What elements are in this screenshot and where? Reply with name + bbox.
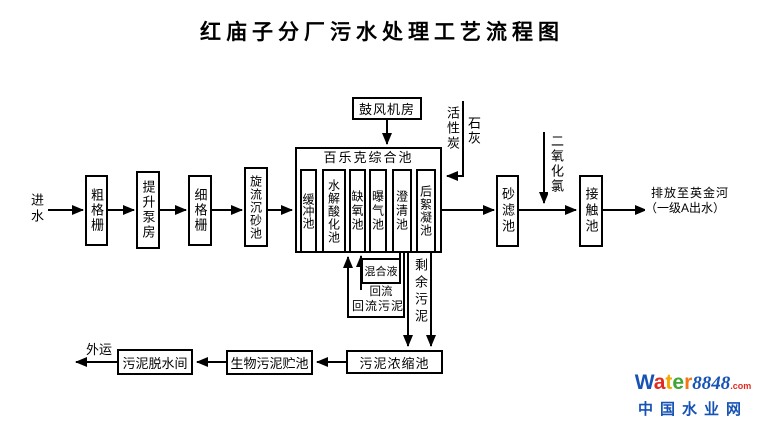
node-contact-tank: 接触池 xyxy=(579,175,603,247)
pool-cell-anoxic: 缺氧池 xyxy=(349,169,366,253)
water8848-logo: Water8848.com 中国水业网 xyxy=(622,372,764,419)
logo-water-text: Water xyxy=(635,371,693,394)
chlorine-dioxide-label: 二氧化氯 xyxy=(548,134,563,194)
node-sludge-dewatering-room: 污泥脱水间 xyxy=(117,349,193,375)
reflux-label: 回流 xyxy=(363,286,399,299)
outbound-transport-label: 外运 xyxy=(86,343,112,358)
node-bio-sludge-storage: 生物污泥贮池 xyxy=(226,350,313,375)
return-sludge-label: 回流污泥 xyxy=(352,300,404,314)
diagram-title: 红庙子分厂污水处理工艺流程图 xyxy=(0,16,764,46)
node-lift-pump-house: 提升泵房 xyxy=(136,171,160,249)
discharge-label-line1: 排放至英金河 xyxy=(651,187,729,201)
pool-cell-buffer: 缓冲池 xyxy=(300,169,317,253)
logo-number: 8848 xyxy=(692,373,730,394)
discharge-label-line2: （一级A出水） xyxy=(645,202,725,216)
mixed-liquor-label-box: 混合液 xyxy=(361,258,401,284)
node-sand-filter: 砂滤池 xyxy=(496,175,519,247)
activated-carbon-label: 活性炭 xyxy=(444,106,459,151)
biolak-pool-title: 百乐克综合池 xyxy=(295,151,442,166)
pool-cell-hydrolysis-acidification: 水解酸化池 xyxy=(322,169,346,253)
logo-domain-suffix: .com xyxy=(730,381,751,391)
logo-wordmark: Water8848.com xyxy=(622,372,764,397)
node-coarse-screen: 粗格栅 xyxy=(85,175,108,246)
node-sludge-thickener: 污泥浓缩池 xyxy=(346,350,443,374)
pool-cell-post-flocculation: 后絮凝池 xyxy=(416,169,436,253)
logo-subtitle: 中国水业网 xyxy=(622,398,764,419)
node-cyclone-grit-chamber: 旋流沉砂池 xyxy=(244,167,268,247)
node-fine-screen: 细格栅 xyxy=(188,175,212,246)
inlet-label: 进水 xyxy=(28,193,43,225)
node-blower-room: 鼓风机房 xyxy=(352,97,422,120)
pool-cell-aeration: 曝气池 xyxy=(369,169,387,253)
lime-label: 石灰 xyxy=(465,116,480,146)
excess-sludge-label: 剩余污泥 xyxy=(412,258,427,326)
pool-cell-clarifier: 澄清池 xyxy=(392,169,412,253)
